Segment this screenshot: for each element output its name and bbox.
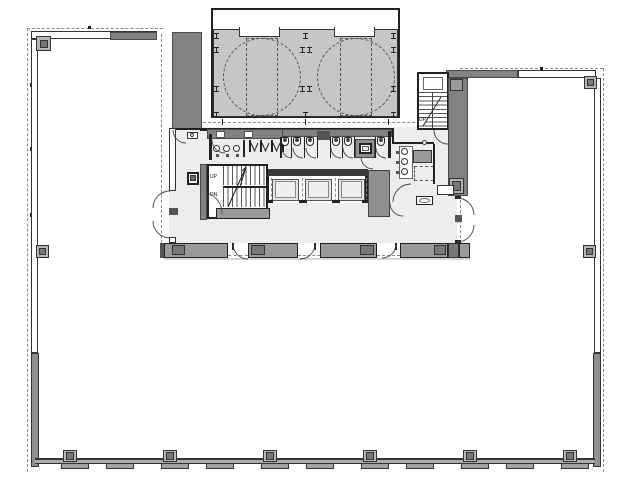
steel-beam-marker	[214, 86, 219, 92]
column-core-fill	[466, 452, 474, 460]
deck-notch	[334, 27, 375, 37]
deck-tick	[305, 119, 306, 125]
wall-washroom-west	[209, 134, 212, 160]
soap-dispenser	[236, 154, 239, 157]
door-jamb	[455, 196, 461, 199]
column-core-fill	[266, 452, 274, 460]
floor-plan: UP	[0, 0, 640, 480]
soap-dispenser	[396, 171, 399, 174]
column-core-fill	[40, 40, 48, 48]
bench-outline	[414, 166, 434, 181]
steel-beam-marker	[391, 33, 396, 39]
soap-dispenser	[216, 154, 219, 157]
stair-landing-slab	[216, 208, 270, 219]
sink	[401, 158, 408, 165]
spandrel-panel	[506, 463, 534, 469]
soap-dispenser	[396, 161, 399, 164]
sink	[233, 145, 240, 152]
boundary-dashed-top-right	[460, 68, 603, 69]
shaft-opening	[216, 131, 225, 138]
spandrel-panel	[306, 463, 334, 469]
spandrel-pad	[461, 463, 489, 469]
wall-east-lower	[593, 353, 601, 467]
guide-rail	[366, 178, 367, 202]
shaft-opening	[244, 131, 253, 138]
spandrel-pad	[261, 463, 289, 469]
shaft	[413, 150, 432, 163]
deck-tick	[222, 119, 223, 125]
stall-partition	[330, 137, 331, 158]
deck-notch	[239, 27, 280, 37]
boundary-dashed-top-left	[27, 28, 163, 29]
curtain-wall-west	[31, 39, 38, 353]
door-pivot	[422, 140, 427, 145]
band-end-block	[448, 243, 459, 258]
sink	[213, 145, 220, 152]
steel-beam-marker	[300, 47, 305, 53]
door-leaf	[314, 243, 316, 250]
sink	[401, 168, 408, 175]
fire-hose-reel	[190, 175, 196, 181]
urinal-screen	[271, 140, 273, 152]
wall-stub	[243, 140, 245, 157]
stair-roof-landing	[423, 77, 443, 90]
mullion-block	[172, 245, 185, 255]
wall-stalls-east	[388, 131, 391, 158]
tower-basin-1	[246, 38, 278, 116]
stair-main-down-label: DN	[210, 193, 217, 198]
wall-top-right	[446, 70, 518, 78]
soap-dispenser	[226, 154, 229, 157]
toilet-tank	[346, 138, 350, 142]
steel-beam-marker	[214, 47, 219, 53]
band-shadow	[164, 258, 470, 260]
wall-womens-north	[392, 142, 434, 144]
stair-main-treads-down	[223, 188, 267, 207]
stall-partition	[317, 137, 318, 158]
door-jamb	[299, 200, 307, 203]
door-swing	[233, 244, 248, 259]
mullion-block	[251, 245, 265, 255]
elevator-car-3-cab	[341, 181, 362, 198]
spandrel-pad	[161, 463, 189, 469]
toilet-tank	[379, 138, 383, 142]
steel-beam-marker	[300, 86, 305, 92]
wall-stair-west	[200, 164, 207, 220]
mullion-block	[360, 245, 374, 255]
column-core-fill	[566, 452, 574, 460]
spandrel-pad	[61, 463, 89, 469]
sink	[223, 145, 230, 152]
mullion-block	[434, 245, 446, 255]
wall-hoistway-north	[266, 169, 368, 176]
stair-main-up-label: UP	[210, 175, 217, 180]
spandrel-panel	[206, 463, 234, 469]
steel-beam-marker	[303, 112, 308, 118]
steel-beam-marker	[307, 86, 312, 92]
column-core-fill	[366, 452, 374, 460]
stair-main-divider	[223, 186, 267, 188]
stall-partition	[342, 137, 343, 158]
steel-beam-marker	[303, 33, 308, 39]
door-leaf	[232, 243, 234, 250]
elevator-car-1-cab	[275, 181, 296, 198]
drinking-fountain-bowl	[190, 133, 194, 137]
wall-womens-east	[433, 144, 435, 184]
stall-partition	[304, 137, 305, 158]
stair-main-treads-up	[223, 166, 267, 185]
steel-beam-marker	[214, 112, 219, 118]
soap-dispenser	[396, 151, 399, 154]
spandrel-panel	[406, 463, 434, 469]
threshold-dashed	[228, 255, 248, 256]
upper-floor-dashed-left	[161, 34, 162, 243]
stall-partition	[375, 137, 376, 158]
toilet-tank	[334, 138, 338, 142]
spandrel-panel	[106, 463, 134, 469]
bathtub-basin	[419, 198, 430, 203]
mop-sink-basin	[362, 146, 369, 151]
stall-partition	[291, 137, 292, 158]
column-core-fill	[587, 79, 594, 86]
wall-core-west-upper	[169, 128, 176, 191]
column-core-fill	[39, 248, 46, 255]
steel-beam-marker	[214, 33, 219, 39]
steel-beam-marker	[391, 86, 396, 92]
guide-rail	[302, 178, 303, 202]
wing-wall-west	[172, 32, 202, 129]
toilet-tank	[283, 138, 287, 142]
column-core-fill	[66, 452, 74, 460]
toilet-tank	[295, 138, 299, 142]
urinal-screen	[249, 140, 251, 152]
wall-stalls-north	[282, 129, 392, 137]
boundary-dashed-right	[603, 68, 604, 472]
curtain-wall-east	[594, 78, 601, 353]
deck-tick	[388, 119, 389, 125]
toilet-tank	[308, 138, 312, 142]
door-jamb	[332, 200, 340, 203]
door-mullion	[455, 215, 462, 222]
duct-chase	[317, 131, 330, 140]
machine-room	[368, 170, 390, 217]
casework	[437, 185, 454, 195]
elevator-car-2-cab	[308, 181, 329, 198]
steel-beam-marker	[391, 47, 396, 53]
threshold-dashed	[298, 255, 320, 256]
steel-beam-marker	[391, 112, 396, 118]
column-core-fill	[586, 248, 593, 255]
guide-rail	[335, 178, 336, 202]
steel-beam-marker	[307, 47, 312, 53]
spandrel-pad	[361, 463, 389, 469]
door-leaf	[395, 243, 397, 250]
column-core-fill	[166, 452, 174, 460]
guide-rail	[271, 178, 272, 202]
band-end-block	[459, 243, 470, 258]
spandrel-pad	[561, 463, 589, 469]
stair-roof-divider	[432, 92, 433, 128]
door-mullion	[169, 208, 178, 215]
threshold-dashed	[377, 255, 400, 256]
boundary-dashed-left	[27, 28, 28, 472]
column	[450, 79, 463, 91]
tower-basin-2	[340, 38, 372, 116]
wall-top-left	[110, 32, 157, 40]
door-swing	[300, 244, 315, 259]
urinal-screen	[260, 140, 262, 152]
sink	[401, 148, 408, 155]
wall-west-lower	[31, 353, 39, 467]
boundary-tick	[88, 26, 91, 29]
stair-roof-up-label: UP	[419, 118, 426, 123]
